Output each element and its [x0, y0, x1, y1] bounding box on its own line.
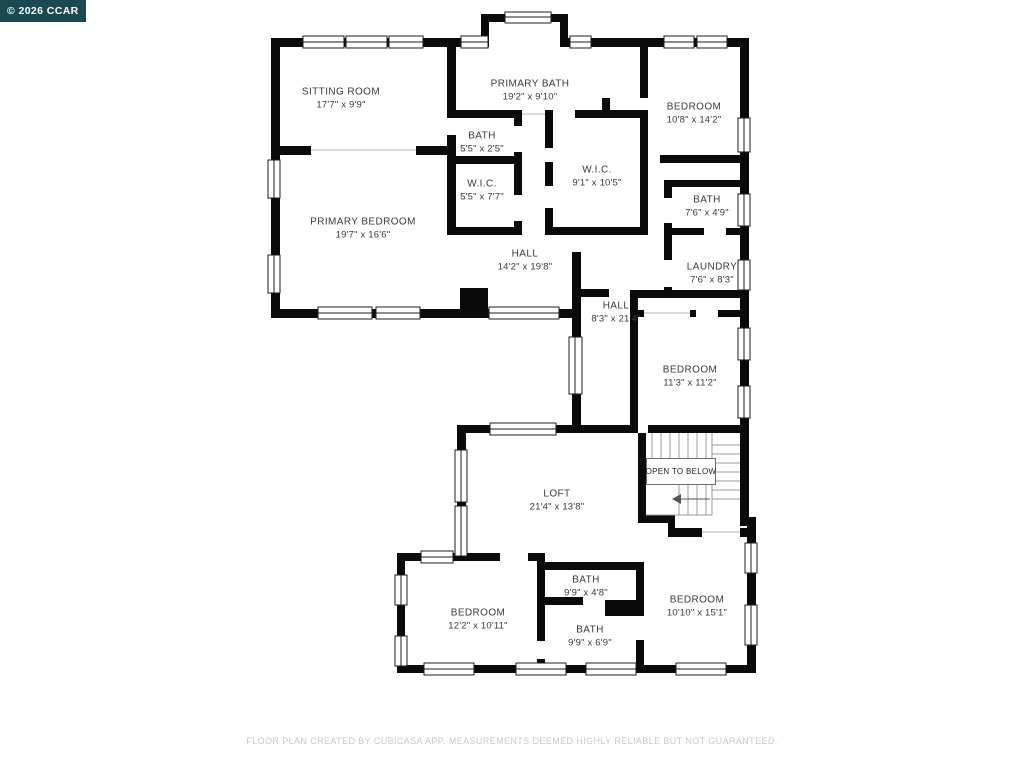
stair-direction-arrow	[672, 494, 681, 504]
room-label-bath-bottom-upper: BATH 9'9" x 4'8"	[564, 575, 608, 600]
room-label-loft: LOFT 21'4" x 13'8"	[530, 489, 585, 514]
room-label-hall-lower: HALL 8'3" x 21'4"	[591, 301, 640, 326]
room-label-primary-bedroom: PRIMARY BEDROOM 19'7" x 16'6"	[310, 217, 416, 242]
room-label-bedroom-top-right: BEDROOM 10'8" x 14'2"	[667, 102, 722, 127]
floor-plan-page: © 2026 CCAR	[0, 0, 1024, 768]
room-label-wic-small: W.I.C. 5'5" x 7'7"	[460, 179, 504, 204]
copyright-watermark-badge: © 2026 CCAR	[0, 0, 86, 22]
room-label-primary-bath: PRIMARY BATH 19'2" x 9'10"	[491, 79, 570, 104]
room-label-bath-right: BATH 7'6" x 4'9"	[685, 195, 729, 220]
room-label-laundry: LAUNDRY 7'6" x 8'3"	[687, 262, 737, 287]
room-label-bath-bottom-lower: BATH 9'9" x 6'9"	[568, 625, 612, 650]
footer-disclaimer: FLOOR PLAN CREATED BY CUBICASA APP. MEAS…	[0, 736, 1024, 746]
copyright-watermark-text: © 2026 CCAR	[7, 5, 79, 17]
floor-plan-drawing	[0, 0, 1024, 768]
room-label-hall-main: HALL 14'2" x 19'8"	[498, 249, 553, 274]
open-to-below-box: OPEN TO BELOW	[646, 458, 716, 485]
room-label-wic-large: W.I.C. 9'1" x 10'5"	[572, 165, 621, 190]
room-label-sitting-room: SITTING ROOM 17'7" x 9'9"	[302, 87, 380, 112]
room-label-bedroom-bottom-left: BEDROOM 12'2" x 10'11"	[448, 608, 507, 633]
open-to-below-label: OPEN TO BELOW	[646, 467, 717, 476]
room-label-bath-small: BATH 5'5" x 2'5"	[460, 131, 504, 156]
room-label-bedroom-mid-right: BEDROOM 11'3" x 11'2"	[663, 365, 717, 390]
room-label-bedroom-bottom-right: BEDROOM 10'10" x 15'1"	[667, 595, 727, 620]
